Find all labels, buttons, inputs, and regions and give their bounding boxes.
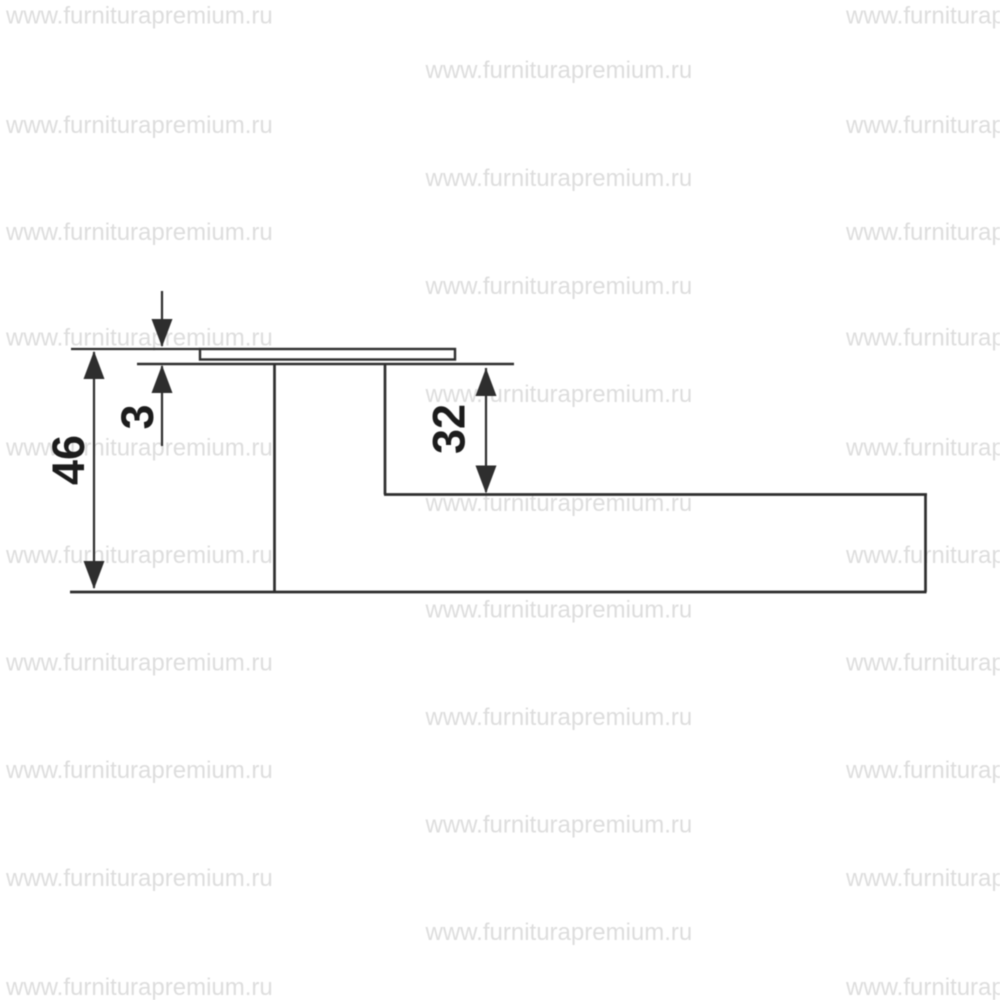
svg-text:www.furniturapremium.ru: www.furniturapremium.ru bbox=[845, 435, 1000, 462]
svg-text:www.furniturapremium.ru: www.furniturapremium.ru bbox=[845, 974, 1000, 1000]
svg-text:www.furniturapremium.ru: www.furniturapremium.ru bbox=[425, 381, 693, 408]
svg-text:www.furniturapremium.ru: www.furniturapremium.ru bbox=[845, 865, 1000, 892]
svg-text:3: 3 bbox=[112, 404, 163, 429]
svg-text:www.furniturapremium.ru: www.furniturapremium.ru bbox=[845, 757, 1000, 784]
svg-text:www.furniturapremium.ru: www.furniturapremium.ru bbox=[425, 165, 693, 192]
svg-text:www.furniturapremium.ru: www.furniturapremium.ru bbox=[425, 273, 693, 300]
svg-text:www.furniturapremium.ru: www.furniturapremium.ru bbox=[5, 650, 273, 677]
svg-text:www.furniturapremium.ru: www.furniturapremium.ru bbox=[5, 974, 273, 1000]
svg-text:www.furniturapremium.ru: www.furniturapremium.ru bbox=[425, 812, 693, 839]
svg-text:www.furniturapremium.ru: www.furniturapremium.ru bbox=[845, 650, 1000, 677]
svg-text:www.furniturapremium.ru: www.furniturapremium.ru bbox=[5, 112, 273, 139]
svg-text:www.furniturapremium.ru: www.furniturapremium.ru bbox=[845, 542, 1000, 569]
svg-text:www.furniturapremium.ru: www.furniturapremium.ru bbox=[5, 757, 273, 784]
svg-text:www.furniturapremium.ru: www.furniturapremium.ru bbox=[425, 919, 693, 946]
svg-text:www.furniturapremium.ru: www.furniturapremium.ru bbox=[845, 219, 1000, 246]
svg-text:www.furniturapremium.ru: www.furniturapremium.ru bbox=[5, 542, 273, 569]
svg-text:www.furniturapremium.ru: www.furniturapremium.ru bbox=[845, 3, 1000, 30]
svg-text:www.furniturapremium.ru: www.furniturapremium.ru bbox=[845, 112, 1000, 139]
svg-text:www.furniturapremium.ru: www.furniturapremium.ru bbox=[5, 219, 273, 246]
svg-text:www.furniturapremium.ru: www.furniturapremium.ru bbox=[845, 325, 1000, 352]
svg-text:www.furniturapremium.ru: www.furniturapremium.ru bbox=[5, 3, 273, 30]
svg-text:32: 32 bbox=[424, 404, 475, 454]
svg-text:46: 46 bbox=[43, 435, 94, 485]
svg-text:www.furniturapremium.ru: www.furniturapremium.ru bbox=[425, 704, 693, 731]
svg-text:www.furniturapremium.ru: www.furniturapremium.ru bbox=[425, 57, 693, 84]
svg-text:www.furniturapremium.ru: www.furniturapremium.ru bbox=[425, 597, 693, 624]
svg-text:www.furniturapremium.ru: www.furniturapremium.ru bbox=[5, 325, 273, 352]
svg-text:www.furniturapremium.ru: www.furniturapremium.ru bbox=[5, 865, 273, 892]
